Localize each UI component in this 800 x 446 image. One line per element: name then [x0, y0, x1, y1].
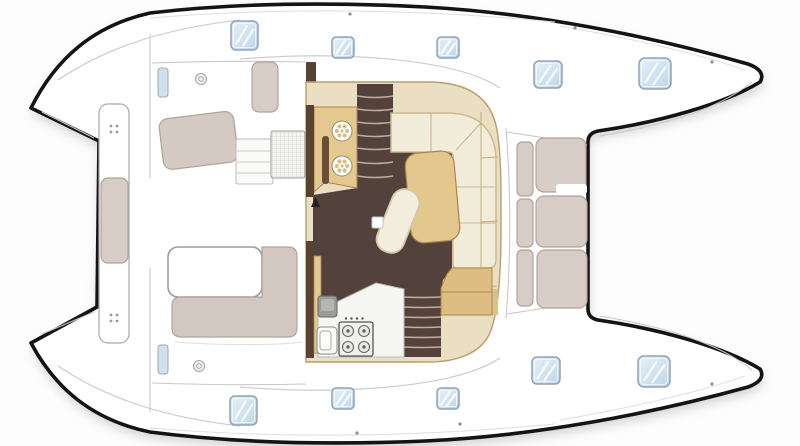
forward-cushion: [517, 250, 533, 306]
cleat: [110, 131, 113, 134]
cleat: [116, 314, 119, 317]
stair-tread: [404, 337, 441, 338]
round-sink: [332, 121, 352, 141]
bulkhead-post: [306, 62, 316, 84]
galley-appliance: [318, 296, 337, 317]
catamaran-floor-plan: [0, 0, 800, 446]
mast-post: [372, 217, 383, 228]
stove-knob: [356, 317, 358, 319]
cleat: [116, 131, 119, 134]
deck-hatch: [534, 61, 562, 88]
deck-fitting-dot: [573, 26, 576, 29]
deck-hatch: [639, 58, 671, 89]
cockpit-mesh-bench: [271, 131, 305, 178]
deck-hatch: [332, 37, 354, 58]
deck-hatch: [231, 21, 258, 50]
stove-knob: [350, 317, 352, 319]
deck-fitting-dot: [348, 12, 351, 15]
deck-hatch: [332, 388, 354, 409]
deck-fitting-starboard: [194, 361, 205, 372]
cockpit-side-cushion: [252, 62, 278, 112]
salon-wall-aft-port: [306, 105, 314, 197]
starboard-side-window: [158, 345, 168, 374]
forward-cushion: [536, 196, 587, 247]
cleat: [110, 125, 113, 128]
forward-cushion: [537, 250, 587, 308]
cockpit-steps: [236, 139, 273, 184]
cockpit-table: [168, 247, 262, 297]
round-sink: [332, 156, 352, 176]
stove-knob: [345, 317, 347, 319]
cockpit-corner-seat: [158, 111, 239, 171]
forward-cushion: [536, 138, 586, 192]
cleat: [110, 314, 113, 317]
deck-hatch: [532, 357, 560, 384]
forward-cushion: [517, 199, 533, 247]
deck-hatch: [230, 396, 257, 425]
deck-hatch: [638, 356, 670, 387]
cleat: [116, 320, 119, 323]
salon-wall-aft-starboard: [306, 241, 314, 358]
counter-fiddle-rail: [322, 136, 329, 184]
forward-cushion: [517, 142, 533, 196]
deck-fitting-port: [196, 74, 207, 85]
aft-platform-cushion: [101, 178, 128, 263]
deck-fitting-dot: [710, 382, 713, 385]
galley-counter-aft: [314, 107, 357, 192]
deck-fitting-dot: [355, 431, 358, 434]
floor-plan-svg: [0, 0, 800, 446]
stair-tread: [404, 317, 441, 318]
deck-fitting-dot: [710, 60, 713, 63]
stair-tread: [404, 297, 441, 298]
port-side-window: [158, 68, 168, 97]
deck-hatch: [437, 388, 459, 409]
galley-sink-unit: [317, 327, 337, 354]
nav-cabinet: [441, 268, 492, 315]
forward-cockpit-cushions: [517, 138, 587, 308]
stair-tread: [404, 347, 441, 348]
cleat: [116, 125, 119, 128]
stair-tread: [404, 307, 441, 308]
stove-knob: [361, 317, 363, 319]
deck-fitting-dot: [458, 422, 461, 425]
cleat: [110, 320, 113, 323]
stair-tread: [404, 327, 441, 328]
deck-hatch: [437, 37, 459, 58]
cushion-notch: [556, 184, 587, 194]
